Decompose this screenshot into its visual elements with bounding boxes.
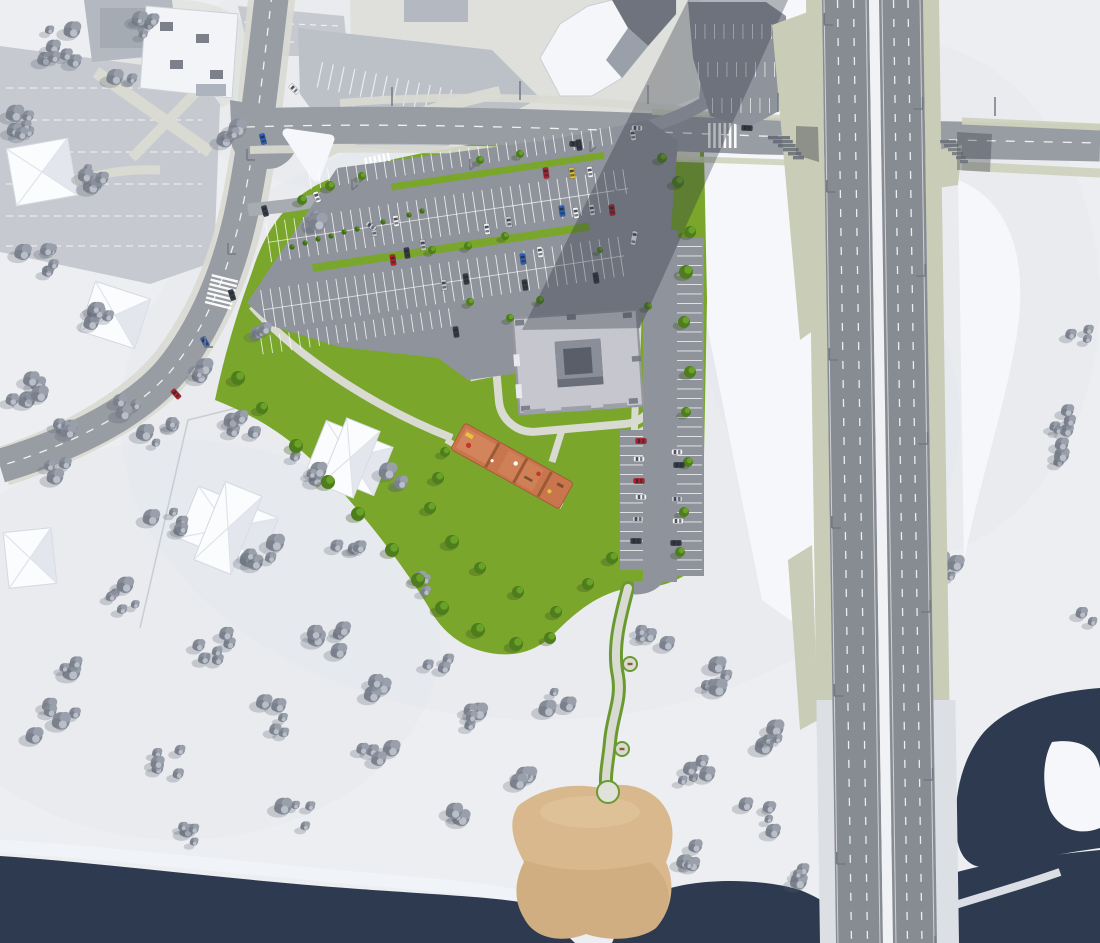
stall-tick [677,531,702,532]
snow-patch [553,692,557,696]
snow-patch [1087,329,1091,333]
snow-patch [516,781,523,788]
green-tree [236,372,244,380]
snow-patch [45,249,51,255]
green-tree [329,182,335,188]
snow-patch [316,470,323,477]
snow-patch [281,806,289,814]
green-tree [431,247,435,251]
snow-patch [687,864,691,868]
embankment-stairs [778,144,796,147]
green-tree [416,574,424,582]
stall-tick [677,408,702,409]
snow-patch [443,667,448,672]
windshield [442,281,446,284]
green-tree [683,317,690,324]
stall-tick [677,474,702,475]
green-tree [687,458,693,464]
snow-patch [216,651,220,655]
windshield [572,142,575,146]
stall-tick [620,503,643,504]
windshield [523,281,527,284]
green-tree [509,315,513,319]
snow-patch [89,322,96,329]
green-tree [294,440,302,448]
snow-patch [179,750,184,755]
snow-patch [341,629,348,636]
snow-patch [1060,444,1066,450]
snow-patch [725,675,730,680]
stall-tick [620,512,643,513]
stall-tick [677,493,702,494]
snow-patch [138,19,142,23]
snow-patch [48,30,52,34]
green-tree [689,227,696,234]
snow-patch [771,831,777,837]
embankment-stairs [940,140,956,143]
snow-patch [274,729,279,734]
windshield [405,249,409,252]
snow-patch [424,591,428,595]
snow-patch [681,780,685,784]
green-tree [479,563,486,570]
bush [331,234,334,237]
stall-tick [677,284,702,285]
balcony-strip [513,354,520,366]
green-tree [469,299,473,303]
green-tree [504,233,508,237]
snow-patch [313,632,320,639]
context-house [3,528,57,589]
bush [318,237,321,240]
bush [344,230,347,233]
snow-patch [273,542,281,550]
stall-tick [677,351,702,352]
snow-patch [949,576,953,580]
east-parking-stalls [677,238,704,576]
green-tree [679,548,685,554]
zebra-stripe [734,123,737,148]
snow-patch [377,758,384,765]
car-body [672,496,683,501]
snow-patch [231,133,236,138]
rooftop-unit [170,60,183,69]
snow-patch [13,113,21,121]
snow-patch [73,61,79,67]
stall-tick [677,389,702,390]
stall-tick [620,455,643,456]
snow-patch [84,175,90,181]
snow-patch [122,412,129,419]
snow-patch [121,609,125,613]
embankment-stairs [960,160,968,163]
snow-patch [151,19,157,25]
bush [305,241,308,244]
snow-patch [64,463,69,468]
car-body [636,438,647,443]
snow-patch [156,762,162,768]
windshield [538,248,542,251]
snow-patch [53,57,58,62]
snow-patch [566,704,573,711]
stall-tick [620,560,643,561]
snow-patch [155,443,159,447]
snow-patch [470,716,475,721]
snow-patch [32,735,40,743]
bush [357,227,360,230]
east-parking-stalls-west [620,430,643,570]
snow-patch [1060,455,1067,462]
car [671,540,682,545]
stall-tick [677,560,702,561]
snow-patch [776,738,780,742]
stall-tick [769,98,770,113]
snow-patch [11,399,17,405]
green-tree [440,602,448,610]
green-tree [555,607,562,614]
car-body [634,456,645,461]
car [634,478,645,483]
embankment-stairs [952,152,963,155]
windshield [544,169,548,172]
embankment-stairs [956,156,966,159]
green-tree [684,266,692,274]
car-body [634,478,645,483]
car [673,518,684,523]
snow-patch [52,264,57,269]
snow-patch [647,635,653,641]
snow-patch [149,517,156,524]
car [633,516,644,521]
rooftop-unit [160,22,173,31]
embankment-stairs [773,140,793,143]
green-tree [587,579,594,586]
stall-tick [620,436,643,437]
embankment-stairs [783,148,798,151]
windshield [574,209,578,212]
snow-patch [73,713,78,718]
snow-patch [224,633,230,639]
snow-patch [181,528,186,533]
rear-window [642,439,644,443]
snow-patch [1086,338,1090,342]
car-body [569,141,580,147]
stall-tick [677,332,702,333]
green-tree [689,367,696,374]
stall-tick [677,427,702,428]
rooftop-unit [210,70,223,79]
stall-tick [677,256,702,257]
snow-patch [29,379,36,386]
car [672,449,683,454]
stall-tick [765,62,766,77]
snow-patch [172,512,176,516]
snow-patch [49,710,55,716]
green-tree [476,624,484,632]
snow-patch [797,881,804,888]
snow-patch [545,708,553,716]
snow-patch [468,725,473,730]
snow-patch [370,694,377,701]
snow-patch [399,482,405,488]
rear-window [677,541,679,545]
snow-patch [361,748,366,753]
green-tree [450,536,458,544]
snow-patch [358,546,364,552]
snow-patch [20,133,26,139]
green-tree [361,173,365,177]
snow-patch [744,804,750,810]
bench [628,663,633,665]
windshield [507,218,511,221]
context-house [6,138,77,206]
snow-patch [134,404,139,409]
rear-window [680,463,682,467]
green-tree [261,403,268,410]
bush [422,209,425,212]
windshield [633,539,636,543]
rear-window [678,450,680,454]
snow-patch [113,77,120,84]
snow-patch [53,476,60,483]
stall-tick [677,265,702,266]
car [569,141,580,147]
rooftop-unit [196,34,209,43]
snow-patch [768,819,772,823]
bush [292,245,295,248]
snow-patch [63,667,67,671]
stall-tick [677,569,702,570]
snow-patch [193,841,197,845]
snow-patch [94,308,99,313]
green-tree [514,638,522,646]
green-tree [683,508,689,514]
car-body [633,516,644,521]
windshield [485,225,489,228]
snow-patch [38,394,45,401]
snow-patch [427,664,432,669]
stall-tick [677,360,702,361]
snow-patch [337,650,344,657]
roof-plant-room [629,398,638,404]
rear-window [679,519,681,523]
beach-highlight [540,796,640,828]
car [634,456,645,461]
snow-patch [106,316,111,321]
windshield [588,168,592,171]
snow-patch [48,465,53,470]
windshield [570,169,574,172]
stall-tick [677,436,702,437]
stall-tick [677,446,702,447]
beach-landing [597,781,619,803]
snow-patch [192,828,196,832]
snow-patch [131,79,135,83]
green-tree [685,408,691,414]
snow-patch [21,252,28,259]
site-plan-canvas [0,0,1100,943]
green-tree [356,508,364,516]
rear-window [640,457,642,461]
snow-patch [309,806,313,810]
green-tree [429,503,436,510]
snow-patch [123,584,130,591]
snow-patch [253,432,259,438]
green-tree [519,151,523,155]
snow-patch [118,400,124,406]
embankment-stairs [948,148,961,151]
snow-patch [705,774,712,781]
windshield [673,541,676,545]
snow-patch [767,807,773,813]
car [672,496,683,501]
windshield [635,517,638,521]
snow-patch [282,732,286,736]
stall-tick [677,294,702,295]
snow-patch [231,430,237,436]
stall-tick [677,484,702,485]
snow-patch [335,545,340,550]
snow-patch [310,473,314,477]
snow-patch [197,645,202,650]
embankment-stairs [788,152,801,155]
snow-patch [315,221,323,229]
beach-shade [516,860,668,939]
green-tree [437,473,444,480]
embankment-stairs [944,144,958,147]
windshield [464,275,468,278]
bench [620,748,625,750]
rear-window [748,126,750,130]
windshield [560,207,564,210]
green-tree [467,243,471,247]
snow-patch [715,665,723,673]
car-body [741,125,752,131]
snow-patch [239,417,245,423]
snow-patch [282,717,286,721]
car-body [673,518,684,523]
roof-plant-room [632,356,641,362]
snow-patch [110,596,115,601]
snow-patch [177,773,182,778]
green-tree [301,196,307,202]
windshield [676,463,679,467]
windshield [391,256,395,259]
embankment-stairs [768,136,790,139]
stall-tick [620,531,643,532]
bush [409,213,412,216]
windshield [638,495,641,499]
snow-patch [694,846,700,852]
snow-patch [1080,612,1085,617]
green-tree [479,157,483,161]
rear-window [576,142,578,146]
snow-patch [1068,420,1073,425]
stall-tick [620,465,643,466]
windshield [454,328,458,331]
inner-courtyard [563,347,593,375]
green-tree [549,633,556,640]
snow-patch [67,431,73,437]
entrance-canopy [196,84,226,96]
car [631,538,642,543]
green-tree [517,587,524,594]
balcony-strip [515,384,522,398]
snow-patch [74,662,79,667]
car-body [636,494,647,499]
car [674,462,685,467]
car-body [671,540,682,545]
snow-patch [216,659,221,664]
snow-patch [452,810,459,817]
stall-tick [677,313,702,314]
stall-tick [677,246,702,247]
stall-tick [677,341,702,342]
stall-tick [620,550,643,551]
context-building-roof [404,0,468,22]
snow-patch [665,643,672,650]
windshield [521,255,525,258]
snow-patch [182,826,186,830]
car-body [631,538,642,543]
snow-patch [70,29,77,36]
snow-patch [27,116,32,121]
car-body [674,462,685,467]
snow-patch [294,456,298,460]
rear-window [640,479,642,483]
windshield [394,217,398,220]
stall-tick [750,98,751,113]
stall-tick [620,493,643,494]
snow-patch [69,671,77,679]
green-tree [326,476,334,484]
windshield [421,241,425,244]
car [636,494,647,499]
snow-patch [142,34,146,38]
windshield [675,519,678,523]
snow-patch [954,563,961,570]
snow-patch [248,554,253,559]
snow-patch [304,826,308,830]
stall-tick [677,398,702,399]
snow-patch [374,681,381,688]
windshield [744,126,747,130]
snow-patch [1066,410,1072,416]
snow-patch [386,471,394,479]
site-plan-render [0,0,1100,943]
snow-patch [796,873,800,877]
car-body [672,449,683,454]
rear-window [639,517,641,521]
stall-tick [677,503,702,504]
car [741,125,752,131]
snow-patch [100,178,106,184]
stall-tick [774,62,775,77]
stall-tick [760,98,761,113]
rear-window [642,495,644,499]
snow-patch [700,761,706,767]
snow-patch [263,328,269,334]
stall-tick [620,474,643,475]
windshield [638,439,641,443]
snow-patch [380,686,388,694]
windshield [674,497,677,501]
roof-plant-room [515,320,524,326]
windshield [674,450,677,454]
snow-patch [294,805,298,809]
snow-patch [65,54,70,59]
snow-patch [277,705,283,711]
